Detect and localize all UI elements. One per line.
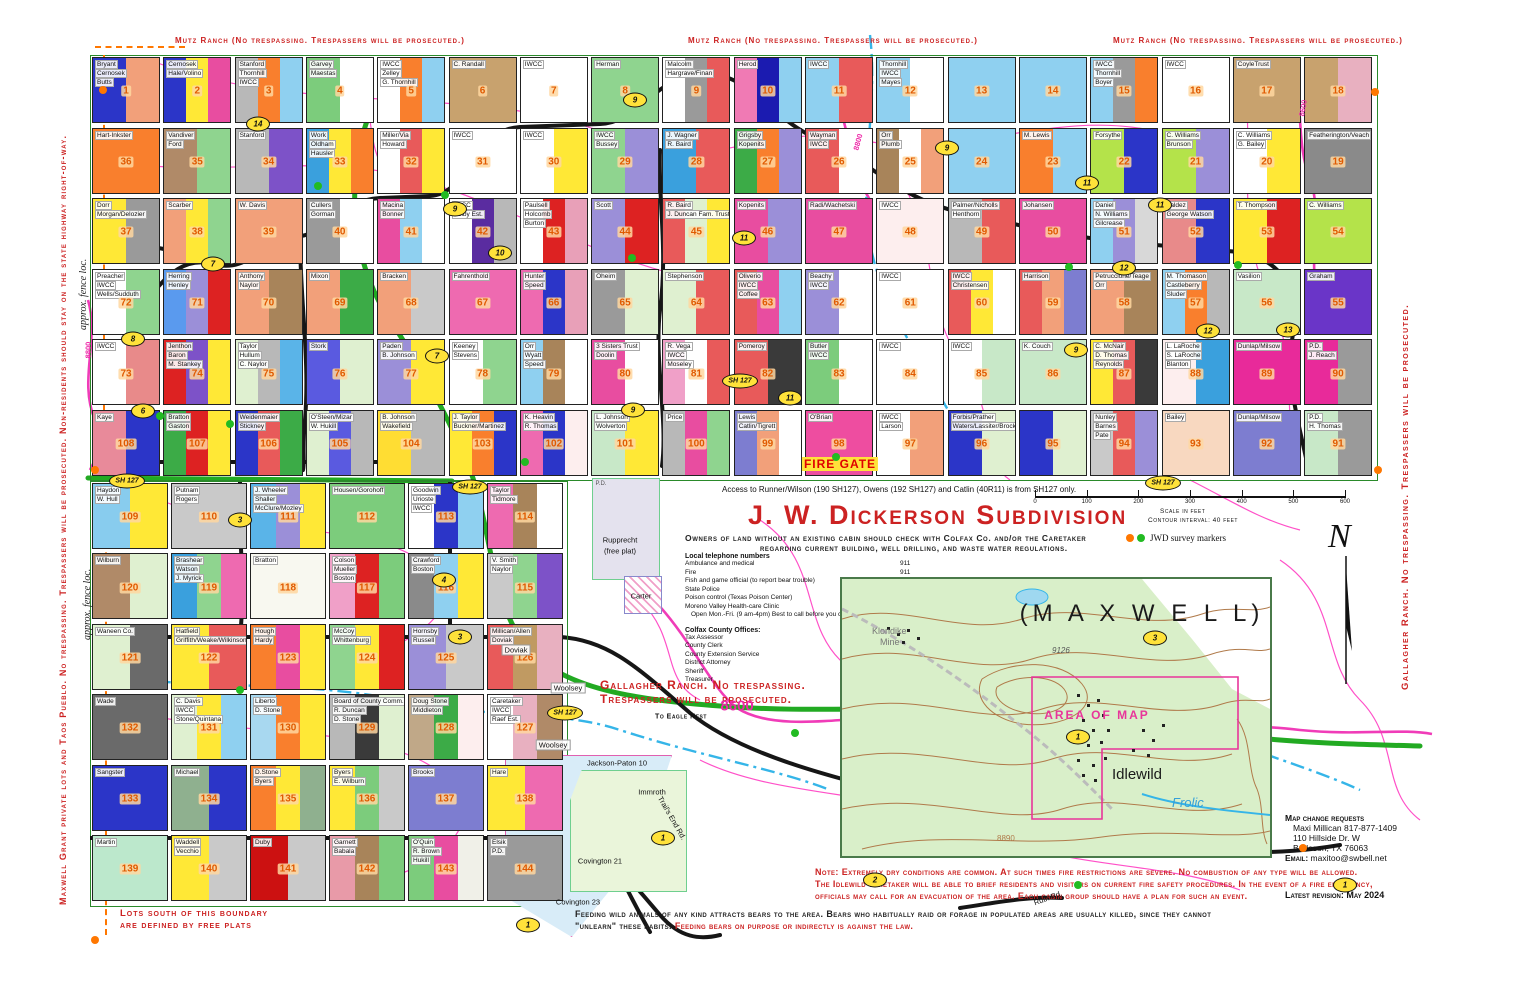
parcel-number: 85 <box>974 368 989 379</box>
parcel-color-band <box>340 58 373 122</box>
parcel-owner-label: O'Quin <box>411 838 435 847</box>
parcel-number: 108 <box>116 439 137 450</box>
parcel-owner-label: Waters/Lassiter/Brock <box>951 422 1016 431</box>
parcel-owner-label: Hullum <box>238 351 262 360</box>
inset-elevation: 9126 <box>1052 646 1070 655</box>
mutz-warning-1: Mutz Ranch (No trespassing. Trespassers … <box>175 36 465 45</box>
map-label: Woolsey <box>551 683 586 694</box>
parcel-block-96: Forbis/PratherWaters/Lassiter/Brock96 <box>948 410 1016 476</box>
parcel-number: 2 <box>193 86 203 97</box>
parcel-number: 138 <box>515 793 536 804</box>
parcel-owner-label: Weidenmaier <box>238 413 280 422</box>
gallagher-mid-warning-1: Gallagher Ranch. No trespassing. <box>600 678 806 692</box>
map-label: Rupprecht <box>603 536 638 545</box>
parcel-color-band <box>779 270 801 334</box>
parcel-color-band <box>379 836 404 900</box>
parcel-owner-label: Orr <box>879 131 892 140</box>
sh127-shield: SH 127 <box>1145 476 1181 491</box>
parcel-number: 18 <box>1331 86 1346 97</box>
parcel-number: 24 <box>974 156 989 167</box>
parcel-owner-label: Buckner/Martinez <box>452 422 507 431</box>
parcel-number: 102 <box>543 439 564 450</box>
parcel-owner-label: V. Smith <box>490 556 518 565</box>
parcel-number: 124 <box>357 653 378 664</box>
parcel-block-12: ThornhillIWCCMayes12 <box>876 57 944 123</box>
map-change-heading: Map change requests <box>1285 813 1397 823</box>
parcel-block-16: IWCC16 <box>1162 57 1230 123</box>
parcel-number: 26 <box>831 156 846 167</box>
parcel-owner-label: G. Bailey <box>1236 140 1266 149</box>
parcel-owner-label: Pate <box>1093 431 1110 440</box>
parcel-color-band <box>993 270 1015 334</box>
parcel-owner-label: Hale/Volino <box>166 69 203 78</box>
parcel-block-81: R. VegaIWCCMoseley81 <box>662 339 730 405</box>
contour-caption: Contour interval: 40 feet <box>1148 517 1238 524</box>
parcel-number: 113 <box>436 512 456 523</box>
parcel-owner-label: Byers <box>332 768 353 777</box>
parcel-block-36: Hart-Inkster36 <box>92 128 160 194</box>
parcel-number: 41 <box>404 227 419 238</box>
parcel-owner-label: IWCC <box>879 69 900 78</box>
parcel-number: 74 <box>190 368 205 379</box>
sh127-shield: SH 127 <box>109 474 145 489</box>
parcel-block-21: C. WilliamsBrunson21 <box>1162 128 1230 194</box>
parcel-block-58: Petruccione/TeageOrr58 <box>1090 269 1158 335</box>
parcel-block-4: GarveyMaestas4 <box>306 57 374 123</box>
parcel-number: 56 <box>1259 298 1274 309</box>
scale-caption: Scale in feet <box>1160 508 1205 515</box>
survey-marker-green <box>832 453 840 461</box>
parcel-block-94: NunleyBarnesPate94 <box>1090 410 1158 476</box>
parcel-owner-label: Oliverio <box>737 272 763 281</box>
parcel-owner-label: IWCC <box>879 201 900 210</box>
rupprecht-plat-box <box>592 478 660 580</box>
parcel-number: 27 <box>760 156 775 167</box>
survey-marker-green <box>1074 881 1082 889</box>
parcel-owner-label: B. Johnson <box>380 351 417 360</box>
parcel-color-band <box>379 554 404 618</box>
survey-marker-orange <box>1374 466 1382 474</box>
parcel-color-band <box>779 411 801 475</box>
parcel-block-14: 14 <box>1019 57 1087 123</box>
parcel-owner-label: Morgan/Delozier <box>95 210 147 219</box>
parcel-owner-label: IWCC <box>879 272 900 281</box>
parcel-owner-label: Stanford <box>238 131 267 140</box>
parcel-block-102: K. HeavinR. Thomas102 <box>520 410 588 476</box>
parcel-block-32: Miller/ViaHoward32 <box>377 128 445 194</box>
parcel-number: 59 <box>1045 298 1060 309</box>
inset-cabin-dot <box>1077 759 1080 762</box>
parcel-block-91: P.D.H. Thomas91 <box>1304 410 1372 476</box>
parcel-block-109: HaydonW. Hull109 <box>92 483 168 549</box>
parcel-block-10: Herod10 <box>734 57 802 123</box>
north-arrow-needle <box>1336 556 1356 686</box>
route-number-badge: 13 <box>1276 323 1300 338</box>
parcel-block-31: IWCC31 <box>449 128 517 194</box>
scale-tick-label: 0 <box>1033 499 1036 505</box>
parcel-owner-label: IWCC <box>808 281 829 290</box>
parcel-owner-label: C. Davis <box>174 697 203 706</box>
parcel-owner-label: Catlin/Tigrett <box>737 422 778 431</box>
parcel-block-78: KeeneyStevens78 <box>449 339 517 405</box>
parcel-number: 55 <box>1331 298 1346 309</box>
lots-south-note-2: are defined by free plats <box>120 920 252 931</box>
parcel-number: 1 <box>121 86 131 97</box>
inset-topo-art: (M A X W E L L) Klondike Mine 9126 AREA … <box>842 579 1270 856</box>
parcel-number: 46 <box>760 227 775 238</box>
scale-tick <box>1035 490 1036 498</box>
parcel-number: 38 <box>190 227 205 238</box>
parcel-block-59: Harrison59 <box>1019 269 1087 335</box>
parcel-owner-label: P.D. <box>490 847 506 856</box>
parcel-owner-label: Stevens <box>452 351 480 360</box>
parcel-block-139: Martin139 <box>92 835 168 901</box>
parcel-block-119: BrashearWatsonJ. Myrick119 <box>171 553 247 619</box>
inset-cabin-dot <box>1087 704 1090 707</box>
phone-row: Ambulance and medical911 <box>685 560 985 569</box>
parcel-owner-label: Naylor <box>238 281 261 290</box>
parcel-owner-label: Macina <box>380 201 405 210</box>
parcel-block-53: T. Thompson53 <box>1233 198 1301 264</box>
parcel-number: 33 <box>332 156 347 167</box>
legend-green-dot <box>1137 534 1145 542</box>
parcel-number: 100 <box>686 439 707 450</box>
parcel-owner-label: Henthorn <box>951 210 982 219</box>
parcel-number: 60 <box>974 298 989 309</box>
parcel-owner-label: Featherington/Veach <box>1307 131 1371 140</box>
parcel-owner-label: Wade <box>95 697 116 706</box>
parcel-number: 9 <box>692 86 702 97</box>
parcel-owner-label: Bonner <box>380 210 405 219</box>
parcel-block-137: Brooks137 <box>408 765 484 831</box>
parcel-number: 83 <box>831 368 846 379</box>
parcel-number: 44 <box>618 227 633 238</box>
parcel-block-30: IWCC30 <box>520 128 588 194</box>
parcel-block-123: HoughHardy123 <box>250 624 326 690</box>
phone-number: 911 <box>900 560 910 569</box>
inset-cabin-dot <box>1097 699 1100 702</box>
inset-cabin-dot <box>1104 757 1107 760</box>
parcel-owner-label: Hornsby <box>411 627 439 636</box>
parcel-color-band <box>379 766 404 830</box>
parcel-number: 25 <box>903 156 918 167</box>
inset-cabin-dots <box>887 627 1165 782</box>
parcel-owner-label: Bussey <box>594 140 619 149</box>
parcel-owner-label: Mixon <box>309 272 330 281</box>
parcel-number: 68 <box>404 298 419 309</box>
parcel-owner-label: Caretaker <box>490 697 523 706</box>
parcel-owner-label: IWCC <box>411 504 432 513</box>
parcel-number: 69 <box>332 298 347 309</box>
parcel-owner-label: L. LaRoche <box>1165 342 1202 351</box>
parcel-owner-label: Bracken <box>380 272 408 281</box>
parcel-owner-label: Maestas <box>309 69 338 78</box>
parcel-block-76: Stork76 <box>306 339 374 405</box>
map-label: (free plat) <box>604 547 636 556</box>
parcel-owner-label: Hart-Inkster <box>95 131 133 140</box>
parcel-block-117: ColsonMuellerBoston117 <box>329 553 405 619</box>
parcel-block-8: Herman8 <box>591 57 659 123</box>
parcel-block-93: Bailey93 <box>1162 410 1230 476</box>
legend-markers-label: JWD survey markers <box>1150 533 1226 543</box>
parcel-owner-label: Plumb <box>879 140 901 149</box>
parcel-owner-label: Zelley <box>380 69 401 78</box>
parcel-owner-label: Gorman <box>309 210 336 219</box>
parcel-number: 121 <box>120 653 141 664</box>
sh127-shield: SH 127 <box>452 480 488 495</box>
parcel-color-band <box>126 58 159 122</box>
parcel-owner-label: Daniel <box>1093 201 1115 210</box>
route-number-badge: 12 <box>1196 324 1220 339</box>
parcel-number: 139 <box>120 864 141 875</box>
route-number-badge: 9 <box>443 202 467 217</box>
parcel-block-83: ButlerIWCC83 <box>805 339 873 405</box>
parcel-number: 13 <box>974 86 989 97</box>
parcel-owner-label: R. Thomas <box>523 422 559 431</box>
parcel-color-band <box>208 199 230 263</box>
parcel-block-60: IWCCChristensen60 <box>948 269 1016 335</box>
scale-tick <box>1138 490 1139 498</box>
inset-cabin-dot <box>1092 764 1095 767</box>
map-subtitle-2: regarding current building, well drillin… <box>760 543 1068 553</box>
parcel-number: 66 <box>546 298 561 309</box>
parcel-owner-label: Elsik <box>490 838 508 847</box>
parcel-owner-label: Holcomb <box>523 210 553 219</box>
inset-cabin-dot <box>917 637 920 640</box>
parcel-owner-label: Grigsby <box>737 131 763 140</box>
parcel-owner-label: Boston <box>411 565 435 574</box>
parcel-block-69: Mixon69 <box>306 269 374 335</box>
parcel-owner-label: Shaller <box>253 495 277 504</box>
parcel-block-135: D.StoneByers135 <box>250 765 326 831</box>
parcel-number: 134 <box>199 793 220 804</box>
parcel-owner-label: Dorr <box>95 201 112 210</box>
parcel-owner-label: IWCC <box>523 131 544 140</box>
parcel-owner-label: Kopenits <box>737 140 766 149</box>
parcel-owner-label: Byers <box>253 777 274 786</box>
parcel-owner-label: Harrison <box>1022 272 1051 281</box>
parcel-number: 73 <box>118 368 133 379</box>
access-note: Access to Runner/Wilson (190 SH127), Owe… <box>722 485 1076 494</box>
parcel-number: 107 <box>187 439 208 450</box>
parcel-owner-label: Goodwin <box>411 486 441 495</box>
parcel-color-band <box>280 340 302 404</box>
parcel-owner-label: Taylor <box>490 486 511 495</box>
parcel-block-62: BeachyIWCC62 <box>805 269 873 335</box>
parcel-color-band <box>565 270 587 334</box>
route-number-badge: 1 <box>516 918 540 933</box>
inset-area-of-map-outline <box>1032 677 1238 819</box>
route-number-badge: 11 <box>732 231 756 246</box>
parcel-color-band <box>280 58 302 122</box>
parcel-number: 78 <box>475 368 490 379</box>
parcel-number: 31 <box>475 156 490 167</box>
parcel-owner-label: Brashear <box>174 556 204 565</box>
parcel-color-band <box>458 836 483 900</box>
parcel-color-band <box>422 58 444 122</box>
parcel-number: 92 <box>1259 439 1274 450</box>
parcel-block-27: GrigsbyKopenits27 <box>734 128 802 194</box>
parcel-block-130: LibertoD. Stone130 <box>250 694 326 760</box>
latest-revision: Latest revision: May 2024 <box>1285 890 1384 900</box>
parcel-owner-label: Beachy <box>808 272 834 281</box>
parcel-block-35: VandiverFord35 <box>163 128 231 194</box>
parcel-owner-label: Bratton <box>166 413 191 422</box>
parcel-owner-label: Howard <box>380 140 406 149</box>
route-number-badge: 7 <box>425 349 449 364</box>
parcel-number: 80 <box>618 368 633 379</box>
parcel-owner-label: Housen/Gorohoff <box>332 486 385 495</box>
parcel-owner-label: IWCC <box>380 60 401 69</box>
parcel-owner-label: J. Duncan Fam. Trust <box>665 210 730 219</box>
inset-cabin-dot <box>1092 729 1095 732</box>
parcel-number: 20 <box>1259 156 1274 167</box>
parcel-number: 86 <box>1045 368 1060 379</box>
parcel-color-band <box>422 129 444 193</box>
map-change-email: Email: maxitoo@swbell.net <box>1285 853 1397 863</box>
parcel-owner-label: Garvey <box>309 60 334 69</box>
parcel-owner-label: Butler <box>808 342 829 351</box>
parcel-owner-label: Waneen Co. <box>95 627 135 636</box>
lots-south-note-1: Lots south of this boundary <box>120 908 268 919</box>
parcel-block-124: McCoyWhittenburg124 <box>329 624 405 690</box>
route-number-badge: 12 <box>1112 261 1136 276</box>
parcel-owner-label: Kaye <box>95 413 114 422</box>
parcel-block-57: M. ThomasonCastleberrySluder57 <box>1162 269 1230 335</box>
parcel-number: 144 <box>515 864 536 875</box>
parcel-color-band <box>707 58 729 122</box>
inset-town-label: Idlewild <box>1112 766 1162 783</box>
parcel-owner-label: IWCC <box>951 272 972 281</box>
parcel-block-34: Stanford34 <box>235 128 303 194</box>
parcel-number: 15 <box>1117 86 1132 97</box>
parcel-owner-label: IWCC <box>1093 60 1114 69</box>
parcel-number: 115 <box>515 582 535 593</box>
map-label: Woolsey <box>536 740 571 751</box>
parcel-block-29: IWCCBussey29 <box>591 128 659 194</box>
parcel-block-61: IWCC61 <box>876 269 944 335</box>
parcel-owner-label: Crawford <box>411 556 441 565</box>
inset-stream-label: Frolic <box>1172 795 1204 810</box>
parcel-number: 45 <box>689 227 704 238</box>
parcel-number: 22 <box>1117 156 1132 167</box>
route-number-badge: 2 <box>863 873 887 888</box>
survey-marker-green <box>156 412 164 420</box>
phone-row: Fire911 <box>685 569 985 578</box>
parcel-block-115: V. SmithNaylor115 <box>487 553 563 619</box>
map-label: Carter <box>631 592 652 601</box>
parcel-number: 75 <box>261 368 276 379</box>
parcel-owner-label: M. Thomason <box>1165 272 1209 281</box>
parcel-owner-label: Urioste <box>411 495 436 504</box>
parcel-owner-label: Christensen <box>951 281 990 290</box>
inset-cabin-dot <box>1094 779 1097 782</box>
parcel-number: 65 <box>618 298 633 309</box>
parcel-block-70: AnthonyNaylor70 <box>235 269 303 335</box>
parcel-number: 98 <box>831 439 846 450</box>
survey-marker-green <box>314 182 322 190</box>
parcel-owner-label: Lewis <box>737 413 758 422</box>
parcel-number: 6 <box>478 86 488 97</box>
parcel-owner-label: M. Lewis <box>1022 131 1052 140</box>
parcel-owner-label: Martin <box>95 838 117 847</box>
parcel-owner-label: Stanford <box>238 60 267 69</box>
parcel-owner-label: Herman <box>594 60 621 69</box>
parcel-owner-label: Orr <box>1093 281 1106 290</box>
inset-stream-line <box>1142 794 1270 815</box>
parcel-owner-label: Jenthon <box>166 342 193 351</box>
route-number-badge: 9 <box>623 93 647 108</box>
parcel-block-125: HornsbyRussell125 <box>408 624 484 690</box>
sh127-shield: SH 127 <box>722 374 758 389</box>
route-number-badge: 1 <box>1333 878 1357 893</box>
parcel-color-band <box>351 411 373 475</box>
parcel-block-133: Sangster133 <box>92 765 168 831</box>
parcel-owner-label: T. Thompson <box>1236 201 1277 210</box>
parcel-color-band <box>1135 411 1157 475</box>
parcel-block-74: JenthonBaronM. Stankey74 <box>163 339 231 405</box>
inset-cabin-dot <box>1087 744 1090 747</box>
scale-tick-label: 400 <box>1237 499 1247 505</box>
parcel-color-band <box>351 129 373 193</box>
parcel-owner-label: IWCC <box>490 706 511 715</box>
route-number-badge: 11 <box>778 391 802 406</box>
parcel-owner-label: Waddell <box>174 838 201 847</box>
parcel-block-2: CernosekHale/Volino2 <box>163 57 231 123</box>
parcel-owner-label: R. Brown <box>411 847 442 856</box>
parcel-owner-label: K. Couch <box>1022 342 1053 351</box>
parcel-color-band <box>537 484 562 548</box>
inset-cabin-dot <box>907 629 910 632</box>
parcel-block-87: C. McNairD. ThomasReynolds87 <box>1090 339 1158 405</box>
parcel-block-43: PaulsellHolcombBurton43 <box>520 198 588 264</box>
parcel-number: 127 <box>515 723 536 734</box>
parcel-owner-label: Paden <box>380 342 403 351</box>
parcel-owner-label: Scott <box>594 201 613 210</box>
parcel-block-72: PreacherIWCCWells/Sudduth72 <box>92 269 160 335</box>
parcel-number: 110 <box>199 512 219 523</box>
map-label: 8800 <box>84 342 93 359</box>
parcel-owner-label: Boston <box>332 574 356 583</box>
scale-tick-label: 100 <box>1082 499 1092 505</box>
parcel-owner-label: Thornhill <box>1093 69 1122 78</box>
route-number-badge: 6 <box>131 404 155 419</box>
parcel-block-85: IWCC85 <box>948 339 1016 405</box>
parcel-block-88: L. LaRocheS. LaRocheBlanton88 <box>1162 339 1230 405</box>
parcel-number: 140 <box>199 864 220 875</box>
parcel-block-28: J. WagnerR. Baird28 <box>662 128 730 194</box>
parcel-number: 17 <box>1259 86 1274 97</box>
map-label: 8600 <box>720 698 753 715</box>
parcel-block-40: CullersGorman40 <box>306 198 374 264</box>
parcel-block-44: Scott44 <box>591 198 659 264</box>
parcel-number: 57 <box>1188 298 1203 309</box>
parcel-number: 39 <box>261 227 276 238</box>
scale-tick <box>1293 490 1294 498</box>
parcel-owner-label: Forsythe <box>1093 131 1122 140</box>
phone-number: 911 <box>900 569 910 578</box>
local-phones-heading: Local telephone numbers <box>685 553 985 560</box>
parcel-owner-label: Sluder <box>1165 290 1188 299</box>
map-canvas: Mutz Ranch (No trespassing. Trespassers … <box>0 0 1536 994</box>
boundary-dash-top <box>95 46 185 48</box>
route-number-badge: 1 <box>651 831 675 846</box>
parcel-block-18: 18 <box>1304 57 1372 123</box>
parcel-color-band <box>779 129 801 193</box>
parcel-owner-label: W. Hukill <box>309 422 338 431</box>
parcel-color-band <box>565 411 587 475</box>
parcel-owner-label: Stickney <box>238 422 267 431</box>
